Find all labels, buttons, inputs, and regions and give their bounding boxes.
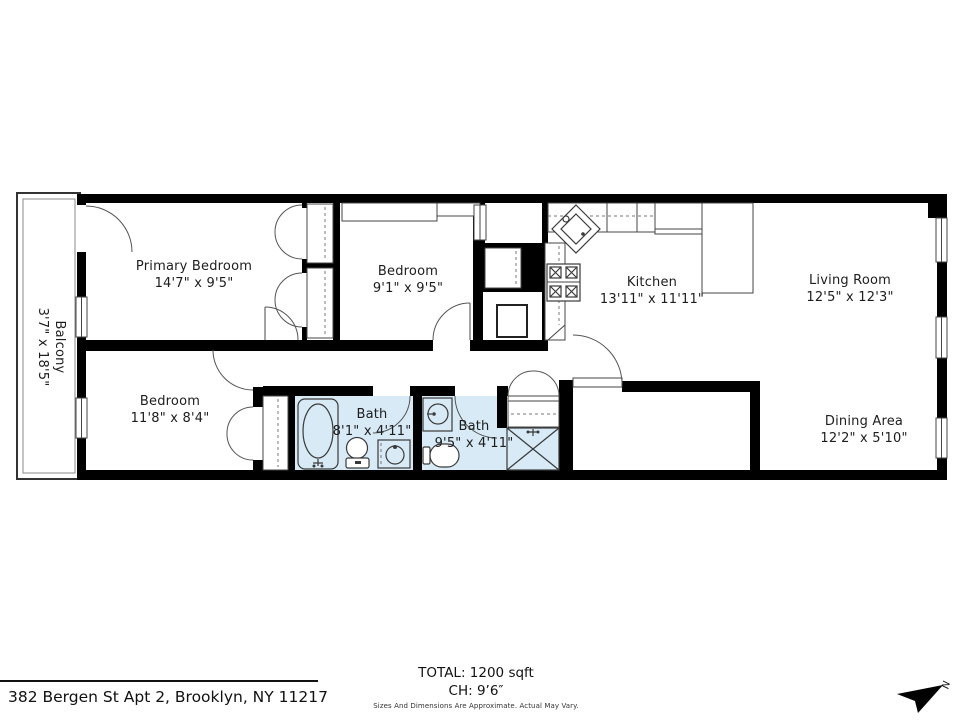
room-label-dining-area: Dining Area 12'2" x 5'10" — [820, 414, 907, 448]
room-dims: 9'1" x 9'5" — [373, 281, 443, 298]
room-dims: 8'1" x 4'11" — [333, 424, 412, 441]
address-text: 382 Bergen St Apt 2, Brooklyn, NY 11217 — [8, 688, 328, 706]
room-name: Dining Area — [820, 414, 907, 431]
ceiling-height-text: CH: 9’6″ — [326, 683, 626, 699]
room-name: Balcony — [50, 308, 67, 387]
toilet-bath1 — [346, 438, 369, 469]
room-name: Primary Bedroom — [136, 259, 252, 276]
room-name: Kitchen — [600, 275, 704, 292]
room-label-bedroom-2: Bedroom 9'1" x 9'5" — [373, 264, 443, 298]
disclaimer-text: Sizes And Dimensions Are Approximate. Ac… — [326, 702, 626, 710]
bedroom-builtins — [342, 203, 486, 240]
room-dims: 11'8" x 8'4" — [131, 411, 210, 428]
room-dims: 3'7" x 18'5" — [33, 308, 50, 387]
room-label-living-room: Living Room 12'5" x 12'3" — [806, 273, 893, 307]
room-dims: 14'7" x 9'5" — [136, 276, 252, 293]
room-name: Bath — [333, 407, 412, 424]
floor-plan-drawing: N — [0, 0, 964, 724]
room-name: Bedroom — [373, 264, 443, 281]
room-dims: 12'2" x 5'10" — [820, 431, 907, 448]
room-dims: 12'5" x 12'3" — [806, 290, 893, 307]
room-dims: 9'5" x 4'11" — [435, 436, 514, 453]
room-label-bath-1: Bath 8'1" x 4'11" — [333, 407, 412, 441]
north-arrow-label: N — [938, 679, 951, 690]
room-label-bedroom-3: Bedroom 11'8" x 8'4" — [131, 394, 210, 428]
room-label-primary-bedroom: Primary Bedroom 14'7" x 9'5" — [136, 259, 252, 293]
address-divider-line — [0, 680, 318, 682]
room-label-bath-2: Bath 9'5" x 4'11" — [435, 419, 514, 453]
room-name: Bath — [435, 419, 514, 436]
room-dims: 13'11" x 11'11" — [600, 292, 704, 309]
total-area-text: TOTAL: 1200 sqft — [326, 665, 626, 681]
north-arrow-icon: N — [897, 679, 951, 713]
room-label-balcony: Balcony 3'7" x 18'5" — [33, 308, 67, 387]
room-name: Bedroom — [131, 394, 210, 411]
floorplan-page: N Primary Bedroom 14'7" x 9'5" Bedroom 9… — [0, 0, 964, 724]
refrigerator — [655, 203, 702, 234]
room-name: Living Room — [806, 273, 893, 290]
kitchen-fixtures — [545, 203, 753, 340]
stove — [547, 264, 580, 301]
room-label-kitchen: Kitchen 13'11" x 11'11" — [600, 275, 704, 309]
